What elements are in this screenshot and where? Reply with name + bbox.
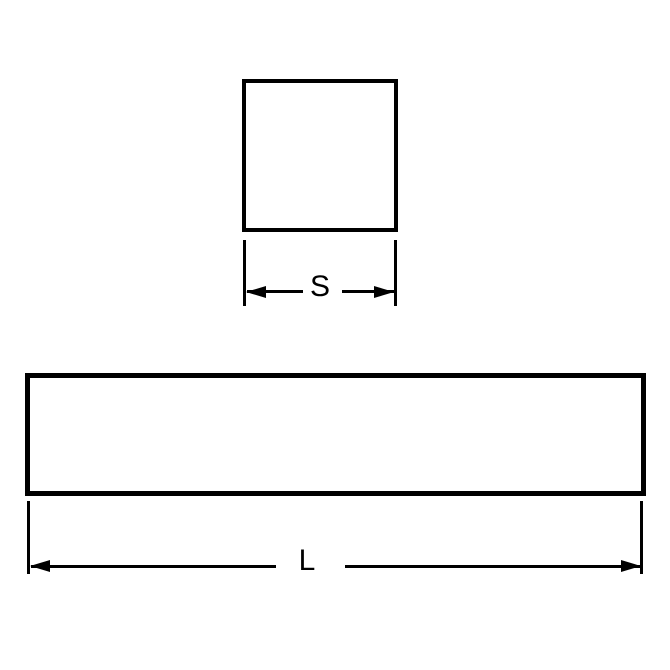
rectangle-outline [25,373,646,496]
arrow-right-icon [374,286,394,298]
square-outline [242,79,398,232]
dimension-line-left-segment [31,565,276,568]
arrow-left-icon [30,560,50,572]
arrow-right-icon [621,560,641,572]
extension-line-right [394,240,397,306]
technical-drawing-canvas: S L [0,0,670,670]
dimension-label-l: L [287,546,327,576]
dimension-line-right-segment [345,565,641,568]
dimension-label-s: S [300,272,340,302]
arrow-left-icon [246,286,266,298]
